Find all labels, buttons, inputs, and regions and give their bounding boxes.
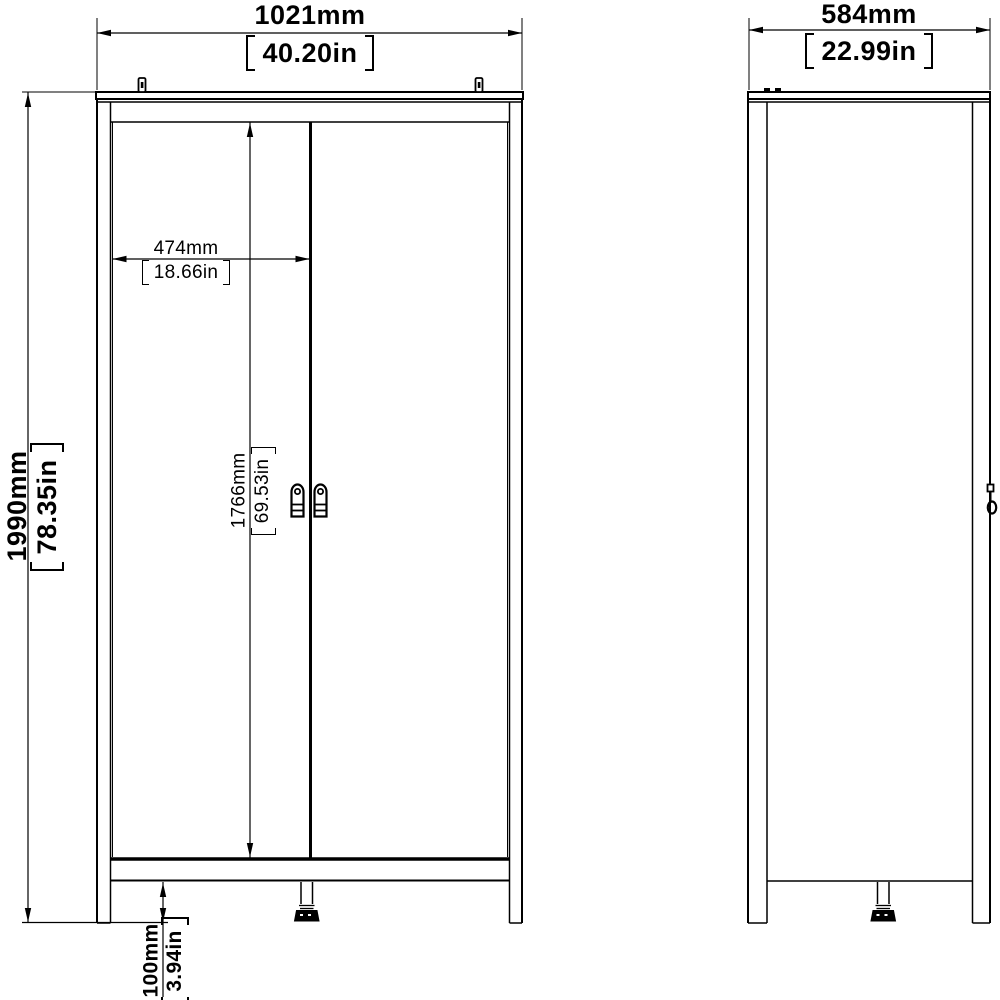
overall-width-metric-label: 1021mm xyxy=(160,0,460,30)
bracket-open xyxy=(30,562,64,571)
bracket-close xyxy=(251,447,276,454)
overall-depth-metric-label: 584mm xyxy=(719,0,1000,28)
clip-bump-2 xyxy=(775,88,781,92)
adjustable-foot-front xyxy=(295,882,320,921)
bracket-open xyxy=(805,33,814,69)
door-height-metric-label: 1766mm xyxy=(230,431,249,551)
bracket-close xyxy=(161,917,189,925)
wall-mount-clip-right xyxy=(476,78,483,92)
side-view xyxy=(748,88,996,923)
bracket-close xyxy=(223,260,230,285)
right-door-handle xyxy=(315,485,327,517)
adjustable-foot-side xyxy=(871,882,896,921)
door-width-imperial-label: 18.66in xyxy=(86,260,286,285)
dimension-lines xyxy=(22,18,990,997)
handle-profile xyxy=(988,485,997,514)
leg-height-metric-label: 100mm xyxy=(141,914,162,1000)
bracket-close xyxy=(365,35,374,71)
overall-depth-imperial-label: 22.99in xyxy=(719,33,1000,69)
clip-bump-1 xyxy=(764,88,770,92)
door-width-metric-label: 474mm xyxy=(86,239,286,258)
bracket-close xyxy=(924,33,933,69)
bracket-open xyxy=(142,260,149,285)
overall-height-metric-label: 1990mm xyxy=(7,420,27,592)
leg-height-imperial-label: 3.94in xyxy=(162,914,188,1000)
overall-width-imperial-label: 40.20in xyxy=(160,35,460,71)
left-door-handle xyxy=(292,485,304,517)
bracket-open xyxy=(251,528,276,535)
wall-mount-clip-left xyxy=(139,78,146,92)
wardrobe-technical-drawing: 1021mm 40.20in 584mm 22.99in 474mm 18.66… xyxy=(0,0,1000,1000)
overall-height-imperial-label: 78.35in xyxy=(30,421,64,593)
front-view xyxy=(96,78,523,923)
drawing-geometry xyxy=(0,0,1000,1000)
bracket-open xyxy=(246,35,255,71)
bracket-close xyxy=(30,443,64,452)
door-height-imperial-label: 69.53in xyxy=(251,431,275,551)
